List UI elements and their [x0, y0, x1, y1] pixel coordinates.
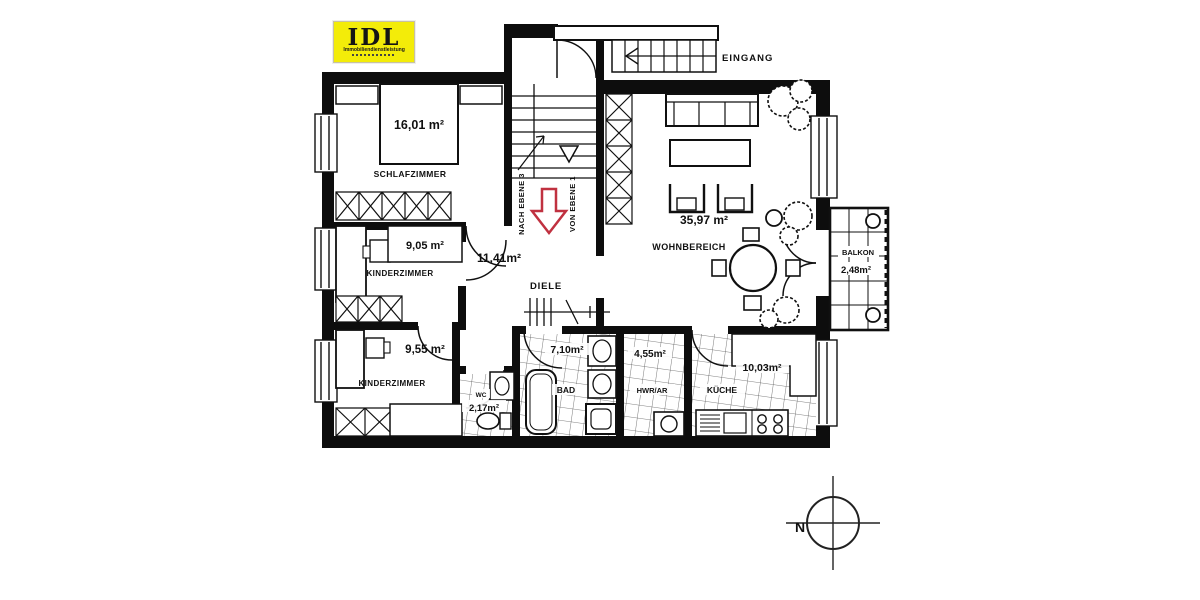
chair-icon: [384, 342, 390, 353]
room-area: 11,41m²: [477, 251, 521, 265]
room-area: 9,55 m²: [405, 344, 445, 356]
chair-icon: [712, 260, 726, 276]
room-name: KINDERZIMMER: [358, 379, 425, 388]
room-area: 9,05 m²: [406, 240, 444, 252]
bed-icon: [336, 226, 366, 302]
room-area: 35,97 m²: [680, 213, 728, 227]
chair-icon: [743, 228, 759, 241]
chair-icon: [786, 260, 800, 276]
wardrobe-icon: [336, 192, 451, 220]
room-name: DIELE: [530, 281, 562, 292]
plant-pot-icon: [866, 308, 880, 322]
coffee-table-icon: [670, 140, 750, 166]
from-lower-level-label: VON EBENE 1: [568, 176, 577, 232]
room-area: 4,55m²: [634, 349, 666, 360]
door-arc: [557, 40, 596, 78]
room-area: 16,01 m²: [394, 118, 444, 132]
sink-icon: [588, 336, 616, 366]
room-name: WC: [476, 392, 487, 399]
chair-icon: [744, 296, 761, 310]
room-name: KÜCHE: [707, 385, 738, 395]
nightstand-icon: [336, 86, 378, 104]
chair-icon: [363, 246, 370, 258]
room-balkon: BALKON 2,48m²: [830, 208, 888, 330]
sink-icon: [588, 370, 616, 398]
plant-pot-icon: [866, 214, 880, 228]
to-upper-level-label: NACH EBENE 3: [517, 173, 526, 235]
wardrobe-icon: [336, 408, 394, 436]
wardrobe-icon: [336, 296, 402, 322]
room-diele: 11,41m² DIELE: [477, 251, 610, 326]
stair-up-arrow: [518, 136, 544, 170]
floorplan-page: IDL Immobiliendienstleistung: [0, 0, 1200, 600]
bathtub-icon: [526, 370, 556, 434]
room-area: 10,03m²: [742, 362, 782, 374]
desk-icon: [366, 338, 384, 358]
room-area: 7,10m²: [550, 344, 584, 356]
sink-icon: [490, 372, 514, 400]
room-name: WOHNBEREICH: [652, 242, 725, 252]
nightstand-icon: [460, 86, 502, 104]
room-wohnbereich: 35,97 m² WOHNBEREICH: [606, 80, 812, 328]
stair-down-arrow: [560, 146, 578, 162]
room-kinderzimmer-2: 9,55 m² KINDERZIMMER: [336, 330, 462, 436]
room-name: HWR/AR: [637, 386, 668, 395]
shower-icon: [586, 404, 616, 434]
entrance-label: EINGANG: [722, 53, 773, 64]
floor-plan-svg: EINGANG NACH EBENE 3 VON EBENE 1: [0, 0, 1200, 600]
plant-icon: [780, 202, 812, 245]
window: [315, 340, 337, 402]
stairwell-icon: [512, 40, 596, 178]
sideboard-icon: [390, 404, 462, 436]
compass-north-label: N: [795, 519, 805, 535]
armchair-icon: [670, 184, 704, 212]
window: [811, 116, 837, 198]
entrance-stairs-icon: [554, 26, 718, 72]
dining-table-icon: [730, 245, 776, 291]
window: [315, 228, 337, 290]
shelf-icon: [606, 94, 632, 224]
room-name: BAD: [557, 385, 575, 395]
level-direction-red-arrow: [532, 189, 566, 233]
toilet-icon: [477, 413, 511, 429]
lamp-icon: [766, 210, 782, 226]
washing-machine-icon: [654, 412, 684, 436]
room-name: KINDERZIMMER: [366, 269, 433, 278]
room-area: 2,17m²: [469, 403, 499, 414]
kitchen-sink-unit-icon: [696, 410, 788, 436]
window: [315, 114, 337, 172]
desk-icon: [370, 240, 390, 262]
room-name: BALKON: [842, 248, 874, 257]
room-name: SCHLAFZIMMER: [374, 169, 447, 179]
room-area: 2,48m²: [841, 265, 871, 276]
plant-icon: [760, 297, 799, 328]
armchair-icon: [718, 184, 752, 212]
room-kinderzimmer-1: 9,05 m² KINDERZIMMER: [336, 226, 462, 322]
room-schlafzimmer: 16,01 m² SCHLAFZIMMER: [336, 84, 502, 220]
sofa-icon: [666, 94, 758, 126]
